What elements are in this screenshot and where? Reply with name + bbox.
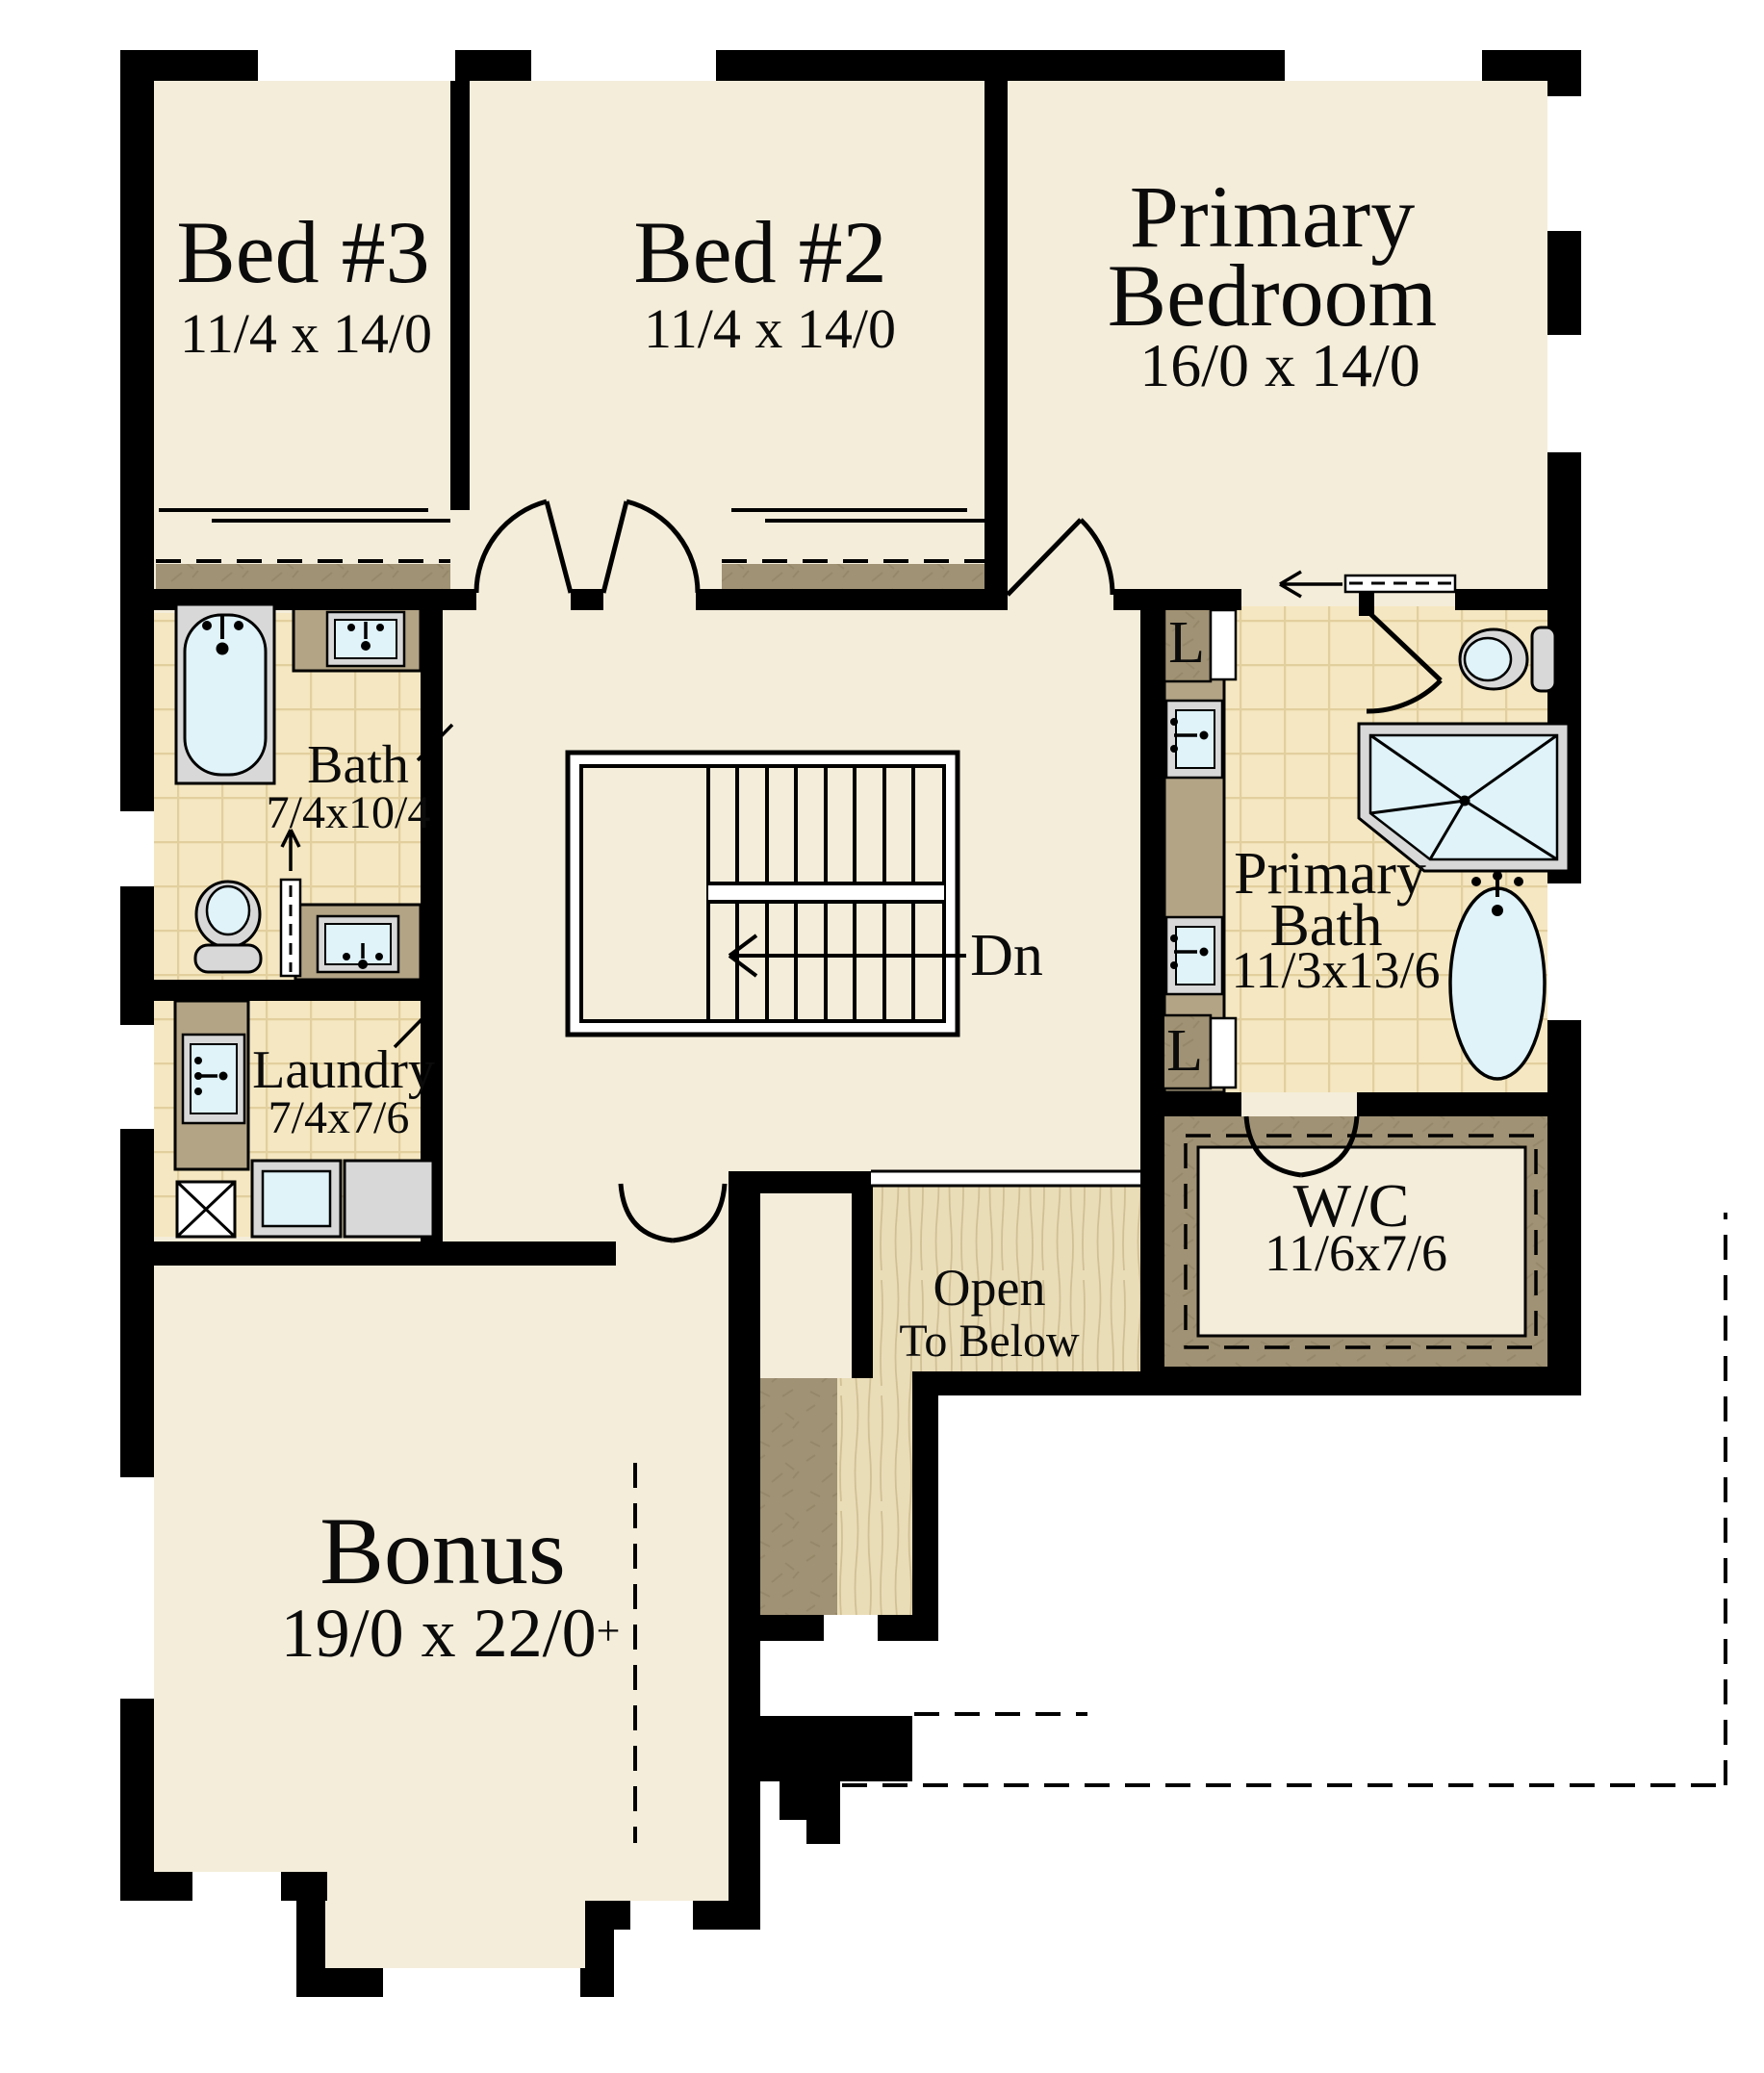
wc-dims: 11/6x7/6 xyxy=(1265,1227,1447,1279)
sink xyxy=(1166,701,1222,778)
open-to-below-label-2: To Below xyxy=(899,1318,1079,1365)
railing xyxy=(871,1171,1140,1186)
window xyxy=(120,1477,154,1699)
bed3-closet-floor xyxy=(156,564,450,591)
window xyxy=(531,50,716,81)
window xyxy=(1547,883,1581,1020)
sink xyxy=(1166,917,1222,994)
bath-label: Bath xyxy=(307,738,409,792)
washer xyxy=(252,1161,341,1237)
bonus-dims: 19/0 x 22/0+ xyxy=(281,1599,621,1668)
linen-closet-door xyxy=(1211,610,1236,679)
bed2-closet-floor xyxy=(722,564,984,591)
stairs xyxy=(568,753,966,1035)
stairs-down-label: Dn xyxy=(970,926,1043,985)
linen-label-top: L xyxy=(1168,613,1205,673)
bath-dims: 7/4x10/4 xyxy=(267,790,431,836)
chase-x-box xyxy=(177,1182,235,1237)
bed3-label: Bed #3 xyxy=(176,208,429,296)
bathtub xyxy=(176,604,274,783)
window xyxy=(120,1025,154,1129)
open-to-below-label-1: Open xyxy=(933,1262,1046,1314)
primary-bath-dims: 11/3x13/6 xyxy=(1231,944,1440,996)
primary-bedroom-label-2: Bedroom xyxy=(1108,251,1437,340)
bed2-dims: 11/4 x 14/0 xyxy=(644,301,896,357)
laundry-sink xyxy=(183,1035,244,1123)
window xyxy=(192,1872,281,1901)
floor-plan: Bed #3 11/4 x 14/0 Bed #2 11/4 x 14/0 Pr… xyxy=(0,0,1764,2073)
bed2-label: Bed #2 xyxy=(633,208,886,296)
window xyxy=(824,1615,878,1641)
window xyxy=(1547,335,1581,452)
dryer xyxy=(345,1161,433,1237)
bed3-dims: 11/4 x 14/0 xyxy=(180,306,432,362)
laundry-label: Laundry xyxy=(252,1043,435,1097)
toilet xyxy=(1460,627,1555,691)
roof-step-block xyxy=(736,1716,912,1781)
window xyxy=(630,1901,693,1930)
window xyxy=(258,50,455,81)
primary-bedroom-dims: 16/0 x 14/0 xyxy=(1139,335,1420,397)
sink xyxy=(318,916,398,972)
bonus-label: Bonus xyxy=(320,1503,566,1600)
window xyxy=(383,1968,580,1997)
laundry-dims: 7/4x7/6 xyxy=(268,1095,410,1141)
toilet xyxy=(195,882,261,972)
sink xyxy=(327,612,404,666)
window xyxy=(1285,50,1482,81)
linen-label-bottom: L xyxy=(1166,1021,1203,1081)
linen-closet-door xyxy=(1211,1018,1236,1088)
window xyxy=(120,811,154,886)
window xyxy=(1547,96,1581,231)
